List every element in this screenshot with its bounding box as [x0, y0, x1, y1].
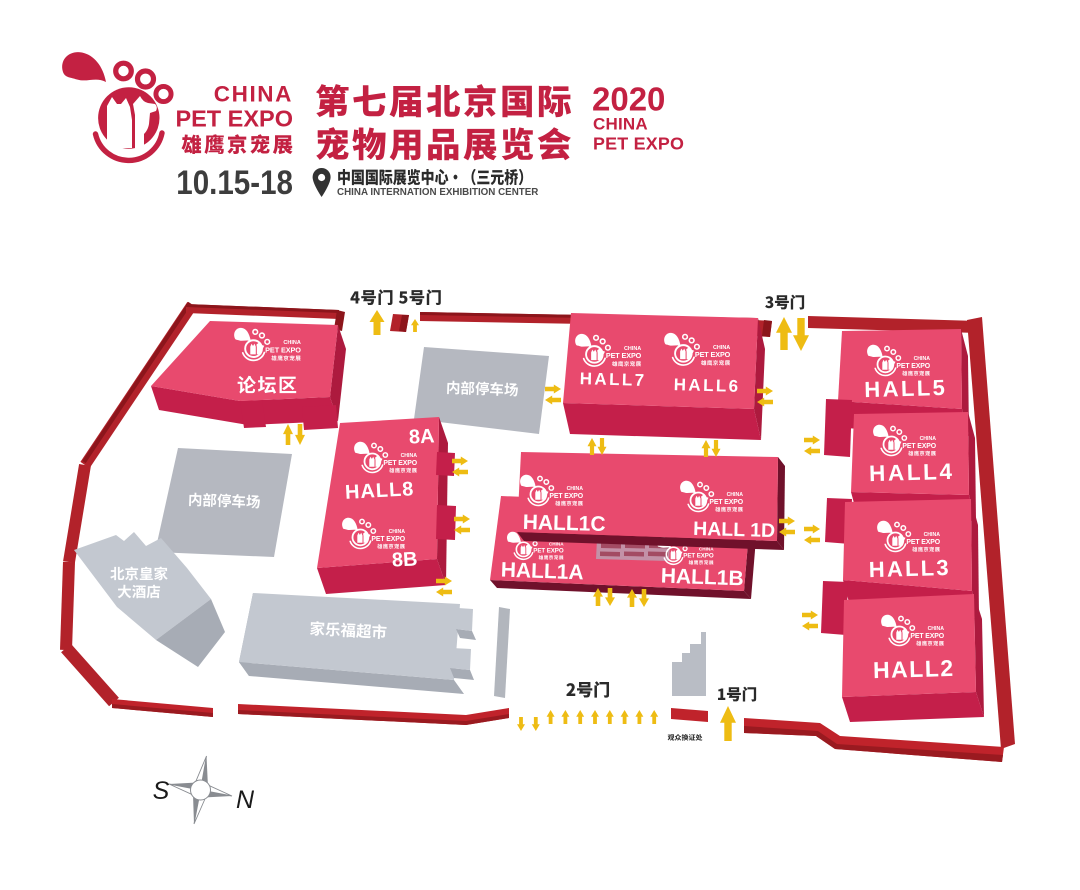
svg-text:HALL8: HALL8 — [344, 478, 415, 504]
svg-text:PET EXPO: PET EXPO — [593, 134, 684, 154]
svg-text:10.15-18: 10.15-18 — [176, 163, 293, 201]
svg-text:CHINA INTERNATION EXHIBITION C: CHINA INTERNATION EXHIBITION CENTER — [337, 187, 538, 198]
svg-text:HALL 1D: HALL 1D — [693, 518, 776, 542]
svg-text:CHINA: CHINA — [593, 114, 648, 133]
svg-text:8B: 8B — [391, 548, 418, 571]
svg-text:PET EXPO: PET EXPO — [175, 106, 293, 132]
svg-text:HALL6: HALL6 — [674, 375, 741, 396]
svg-text:HALL1B: HALL1B — [660, 565, 744, 591]
svg-text:HALL7: HALL7 — [580, 369, 647, 390]
svg-text:HALL3: HALL3 — [869, 555, 952, 582]
svg-text:CHINA: CHINA — [214, 82, 293, 107]
svg-text:HALL1A: HALL1A — [500, 559, 584, 585]
svg-text:HALL4: HALL4 — [869, 459, 955, 486]
svg-text:HALL5: HALL5 — [864, 375, 948, 402]
svg-text:N: N — [236, 786, 255, 814]
svg-text:8A: 8A — [408, 425, 435, 448]
svg-text:HALL1C: HALL1C — [522, 511, 605, 536]
svg-text:2020: 2020 — [592, 81, 665, 118]
svg-text:HALL2: HALL2 — [873, 655, 955, 683]
svg-text:S: S — [153, 777, 170, 805]
